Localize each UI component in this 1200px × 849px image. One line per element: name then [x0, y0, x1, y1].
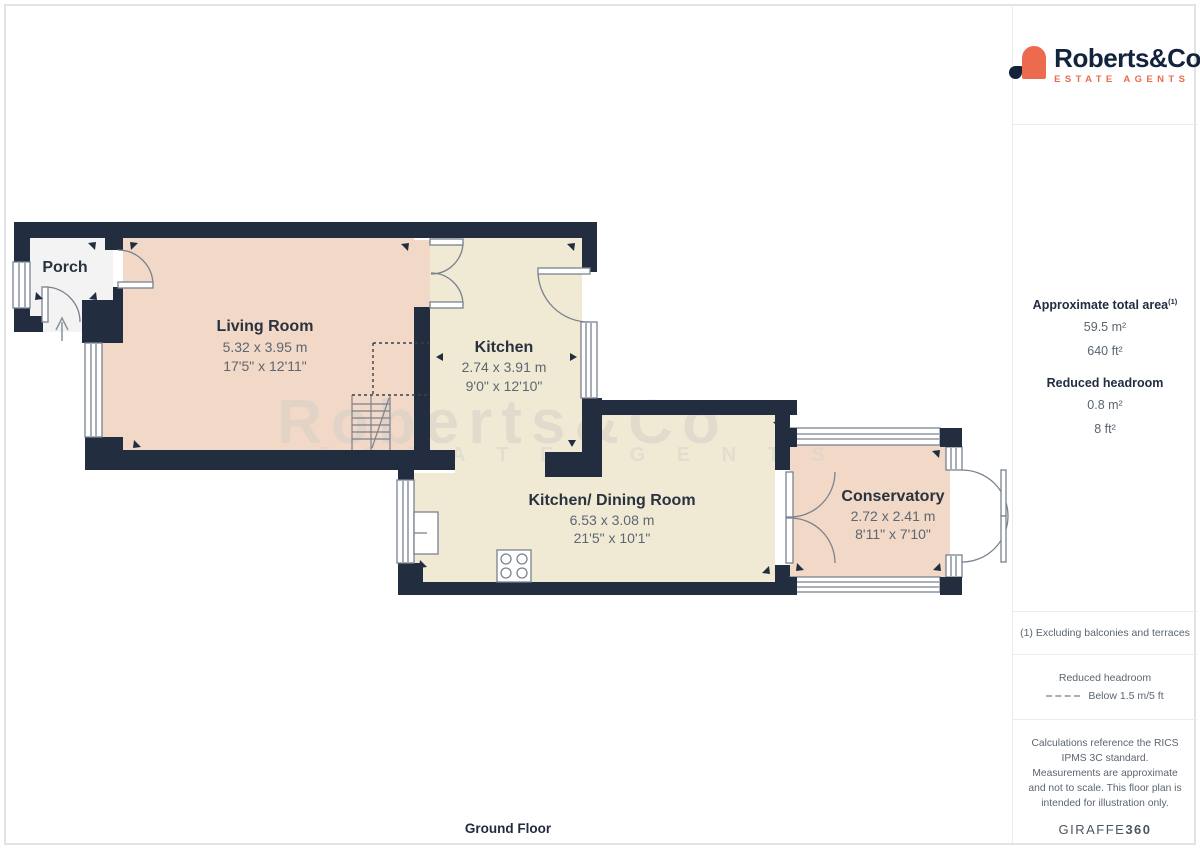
- wall-porch-southeast: [82, 300, 123, 343]
- kitchen-dining-dims-ft: 21'5" x 10'1": [574, 530, 651, 546]
- floor-plan: Roberts&Co E S T A T E A G E N T S: [6, 6, 1012, 843]
- hob: [497, 550, 531, 582]
- total-area-sqm: 59.5 m²: [1013, 318, 1197, 336]
- wall-kitchendining-north: [602, 400, 797, 415]
- kitchen-dining-window: [397, 480, 414, 563]
- conservatory-window-bottom: [790, 577, 940, 592]
- wall-porch-east-stub: [105, 238, 123, 250]
- living-room-dims-ft: 17'5" x 12'11": [223, 358, 307, 374]
- living-room-dims-m: 5.32 x 3.95 m: [223, 339, 308, 355]
- living-room-window-recess: [100, 343, 123, 437]
- floorplan-page: Roberts&Co E S T A T E A G E N T S: [0, 0, 1200, 849]
- wall-top: [14, 222, 597, 238]
- porch-label: Porch: [42, 259, 87, 276]
- legend-item-text: Below 1.5 m/5 ft: [1088, 690, 1163, 702]
- kitchen-dims-m: 2.74 x 3.91 m: [462, 359, 547, 375]
- porch-window: [13, 262, 30, 308]
- wall-porch-bottom-left: [30, 316, 43, 332]
- kitchen-label: Kitchen: [475, 339, 534, 356]
- brand-logo: Roberts&Co ESTATE AGENTS: [1009, 45, 1200, 85]
- info-sidebar: Roberts&Co ESTATE AGENTS Approximate tot…: [1012, 6, 1197, 843]
- footnote-section: (1) Excluding balconies and terraces: [1013, 612, 1197, 655]
- legend-section: Reduced headroom Below 1.5 m/5 ft: [1013, 655, 1197, 720]
- reduced-headroom-title: Reduced headroom: [1013, 376, 1197, 390]
- disclaimer-section: Calculations reference the RICS IPMS 3C …: [1013, 720, 1197, 843]
- wall-kitchen-east-lower: [582, 398, 602, 477]
- brand-logo-icon: [1009, 45, 1047, 81]
- conservatory-dims-m: 2.72 x 2.41 m: [851, 508, 936, 524]
- dashed-line-icon: [1046, 695, 1080, 697]
- conservatory-window-right-upper: [946, 447, 962, 470]
- sink-unit: [414, 512, 438, 554]
- total-area-title: Approximate total area(1): [1013, 297, 1197, 312]
- living-room-window: [85, 343, 102, 437]
- kitchen-dims-ft: 9'0" x 12'10": [466, 378, 543, 394]
- conservatory-dims-ft: 8'11" x 7'10": [855, 526, 931, 542]
- legend-title: Reduced headroom: [1059, 672, 1151, 684]
- total-area-sqft: 640 ft²: [1013, 342, 1197, 360]
- area-summary-section: Approximate total area(1) 59.5 m² 640 ft…: [1013, 125, 1197, 612]
- footnote-text: (1) Excluding balconies and terraces: [1020, 627, 1190, 639]
- wall-kitchen-east-upper: [582, 222, 597, 272]
- wall-kitchendining-west-upper: [398, 450, 414, 480]
- wall-kitchendining-south: [398, 582, 790, 595]
- floor-label: Ground Floor: [465, 821, 552, 836]
- giraffe360-logo: GIRAFFE360: [1027, 822, 1183, 837]
- wall-kitchen-south-stub: [545, 452, 582, 477]
- brand-tagline: ESTATE AGENTS: [1054, 74, 1200, 85]
- reduced-headroom-sqft: 8 ft²: [1013, 420, 1197, 438]
- kitchen-dining-dims-m: 6.53 x 3.08 m: [570, 512, 655, 528]
- kitchen-dining-label: Kitchen/ Dining Room: [528, 492, 695, 509]
- wall-livingroom-east: [414, 307, 430, 450]
- double-door-threshold: [414, 240, 430, 307]
- reduced-headroom-sqm: 0.8 m²: [1013, 396, 1197, 414]
- wall-left-lower: [14, 308, 30, 332]
- disclaimer-text: Calculations reference the RICS IPMS 3C …: [1027, 737, 1183, 812]
- floor-plan-svg: Roberts&Co E S T A T E A G E N T S: [6, 6, 1012, 843]
- conservatory-window-top: [790, 428, 940, 445]
- conservatory-window-right-lower: [946, 555, 962, 577]
- conservatory-french-doors: [962, 470, 1008, 562]
- brand-name: Roberts&Co: [1054, 45, 1200, 71]
- conservatory-label: Conservatory: [841, 488, 944, 505]
- wall-left-upper: [14, 238, 30, 262]
- kitchen-window: [581, 322, 597, 398]
- logo-section: Roberts&Co ESTATE AGENTS: [1013, 6, 1197, 125]
- living-room-label: Living Room: [217, 318, 314, 335]
